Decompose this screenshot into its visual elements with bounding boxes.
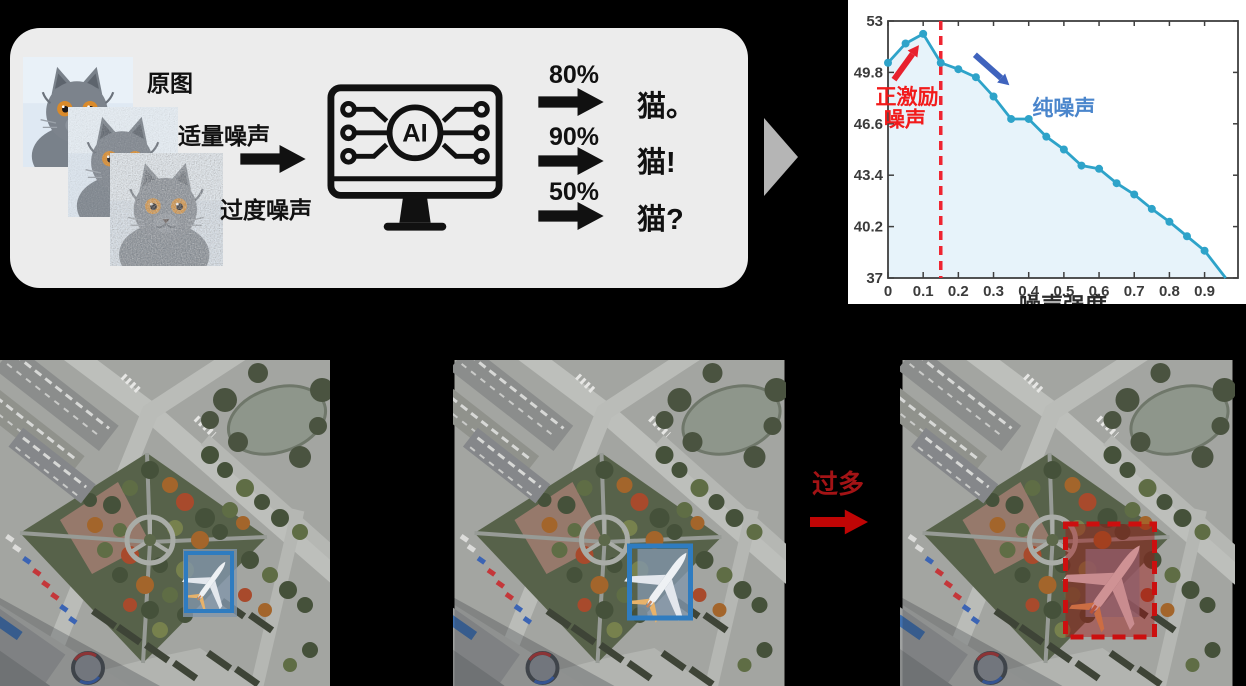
data-point (990, 92, 998, 100)
data-point (1077, 162, 1085, 170)
output-arrow-icon (535, 88, 607, 116)
x-tick-label: 0.2 (948, 283, 969, 300)
y-tick-label: 40.2 (854, 219, 883, 236)
noise-intensity-line-chart: 00.10.20.30.40.50.60.70.80.93740.243.446… (848, 0, 1246, 304)
label-original-image: 原图 (147, 64, 193, 98)
y-tick-label: 53 (866, 13, 883, 30)
data-point (1007, 115, 1015, 123)
x-tick-label: 0.9 (1194, 283, 1215, 300)
figure-page: { "top_panel": { "cats": [ {"label": "原图… (0, 0, 1246, 686)
too-much-arrow-icon (810, 509, 868, 535)
y-tick-label: 49.8 (854, 64, 883, 81)
axis-annotation: 噪声 (884, 107, 926, 131)
axis-annotation: 正激励 (875, 85, 938, 109)
confidence-80: 80% (536, 61, 612, 90)
x-tick-label: 0.8 (1159, 283, 1180, 300)
data-point (1183, 232, 1191, 240)
y-tick-label: 46.6 (854, 116, 883, 133)
label-excessive-noise: 过度噪声 (220, 191, 312, 225)
y-tick-label: 37 (866, 270, 883, 287)
area-fill (888, 34, 1226, 278)
accuracy-vs-noise-chart: 00.10.20.30.40.50.60.70.80.93740.243.446… (848, 0, 1246, 304)
data-point (954, 65, 962, 73)
x-axis-label: 噪声强度 (1019, 293, 1108, 304)
data-point (1113, 179, 1121, 187)
aerial-scene (900, 360, 1235, 686)
ai-monitor-icon: AI (327, 83, 503, 253)
data-point (937, 59, 945, 67)
data-point (919, 30, 927, 38)
data-point (902, 39, 910, 47)
data-point (1042, 133, 1050, 141)
y-tick-label: 43.4 (854, 167, 884, 184)
output-arrow-icon (535, 147, 607, 175)
aerial-scene (0, 360, 330, 686)
data-point (1165, 218, 1173, 226)
data-point (1148, 205, 1156, 213)
cat-image-excessive-noise (110, 153, 223, 266)
aerial-image-medium-bbox (453, 360, 786, 686)
prediction-uncertain: 猫? (637, 196, 684, 238)
aerial-image-small-bbox (0, 360, 330, 686)
output-arrow-icon (535, 202, 607, 230)
x-tick-label: 0.7 (1124, 283, 1145, 300)
x-tick-label: 0.3 (983, 283, 1004, 300)
panel-to-chart-arrow-icon (764, 118, 798, 196)
data-point (884, 59, 892, 67)
x-tick-label: 0.1 (913, 283, 934, 300)
data-point (1130, 190, 1138, 198)
ai-text: AI (402, 120, 427, 148)
prediction-excited: 猫! (637, 139, 676, 181)
cat-noise-demo-panel: 原图 适量噪声 过度噪声 AI 80% 90% 50% 猫。 猫! 猫? (10, 28, 748, 288)
data-point (1095, 165, 1103, 173)
prediction-confident: 猫。 (637, 83, 695, 125)
too-much-noise-label: 过多 (806, 464, 870, 501)
data-point (1060, 146, 1068, 154)
detection-bbox (1066, 524, 1155, 637)
data-point (972, 73, 980, 81)
x-tick-label: 0 (884, 283, 892, 300)
aerial-scene (453, 360, 786, 686)
aerial-image-red-dashed-bbox (900, 360, 1235, 686)
input-arrow-icon (237, 145, 309, 173)
data-point (1201, 247, 1209, 255)
axis-annotation: 纯噪声 (1032, 96, 1095, 120)
